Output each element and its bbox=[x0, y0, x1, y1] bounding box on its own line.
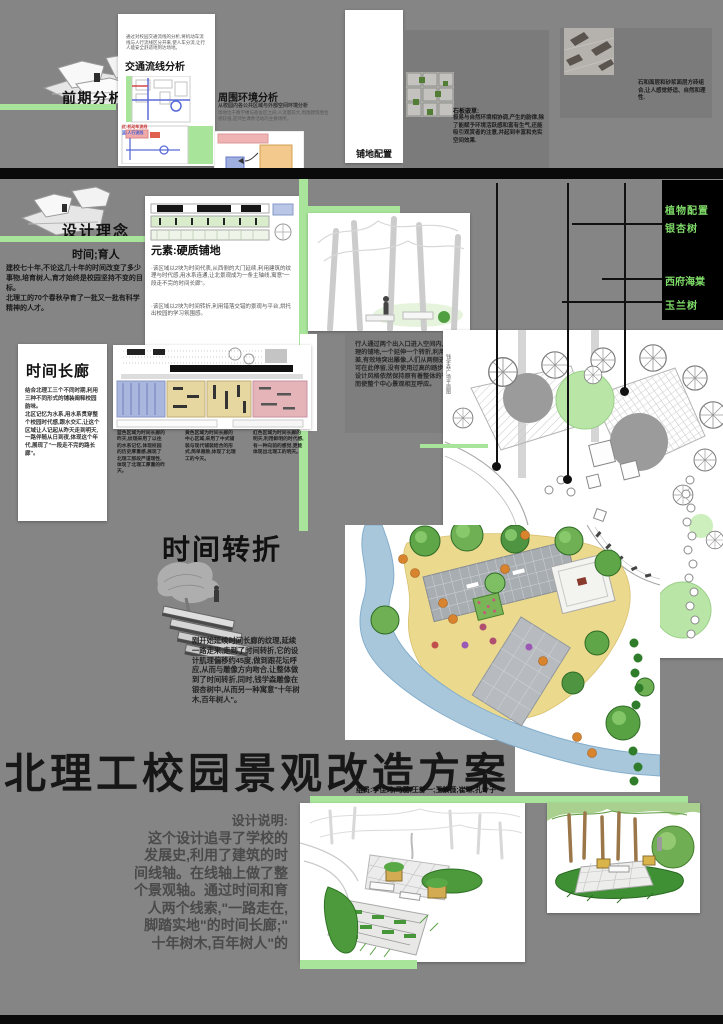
green-horizontal-bar bbox=[303, 206, 400, 213]
traffic-legend-blue: 蓝:人行流线 bbox=[122, 130, 143, 136]
shuoming-line: 这个设计追寻了学校的 bbox=[70, 830, 288, 848]
green-bar-concept bbox=[0, 236, 146, 242]
shuoming-line: 十年树木,百年树人"的 bbox=[70, 935, 288, 953]
plant-label-ginkgo: 银杏树 bbox=[665, 220, 698, 235]
perspective-sketch-right-drawing bbox=[547, 803, 700, 913]
shuoming-heading: 设计说明: bbox=[70, 812, 288, 830]
perspective-sketch-right bbox=[547, 803, 700, 913]
green-bar-qianqi bbox=[0, 104, 116, 110]
green-line-into-plan bbox=[420, 444, 488, 448]
zone-text-col3: 红色区域为时间长廊的明天,利用鲜明的时代感,有一种向前的感觉,更能体现出北理工的… bbox=[253, 431, 305, 457]
stone-grass-photo bbox=[406, 72, 454, 117]
yuansu-bullet2: ·该区域以2块为时间转折,利用错落交错的景观与平台,烘托出校园的学习氛围感。 bbox=[151, 304, 293, 319]
zone-text-col1: 蓝色区域为时间长廊的昨天,纹理采用了以往的水系记忆,体现校园的历史厚重感,展现了… bbox=[117, 431, 165, 476]
plants-panel: 植物配置 银杏树 西府海棠 玉兰树 bbox=[662, 180, 723, 320]
zones-plan-diagram bbox=[113, 345, 311, 429]
design-poster: 前期分析 通过对校园交通流线的分析,将机动车流线与人行流线区分开来,使人车分流,… bbox=[0, 0, 723, 1024]
zones-panel bbox=[113, 345, 311, 429]
plant-callout-line-3 bbox=[624, 183, 626, 391]
plant-callout-dot-1 bbox=[492, 462, 501, 471]
tree-sketch-drawing bbox=[308, 213, 470, 331]
traffic-title: 交通流线分析 bbox=[125, 58, 185, 73]
pudi-right-panel: 石和面层和砂浆面层方砖组合,让人感觉舒适、自然和理性. bbox=[560, 28, 712, 118]
zhuanzhe-body: 刚开始延续时间长廊的纹理,延续一路走来,走到了时间转折,它的设计肌理偏移约45度… bbox=[192, 636, 302, 705]
zhouwei-diagram bbox=[214, 131, 304, 173]
shuoming-line: 脚踏实地"的时间长廊;" bbox=[70, 917, 288, 935]
pudi-left-panel: 石板嵌草: 极易与自然环境相协调,产生的韵律,除了能赋予环境活跃感和富有生气,还… bbox=[403, 30, 549, 168]
plant-callout-dot-3 bbox=[620, 387, 629, 396]
plant-connector-line-2 bbox=[602, 278, 662, 280]
concept-body: 建校七十年,不论这几十年的时间改变了多少事物,培育树人,育才始终是校园坚持不变的… bbox=[6, 264, 144, 314]
tree-sketch-panel bbox=[308, 213, 470, 331]
traffic-analysis-panel: 通过对校园交通流线的分析,将机动车流线与人行流线区分开来,使人车分流,让行人能安… bbox=[118, 14, 215, 166]
black-divider-band bbox=[0, 168, 723, 179]
plant-connector-line-1 bbox=[572, 223, 662, 225]
zhouwei-subtitle: 从校园内各公共区域与外部空间环境分析 bbox=[218, 102, 308, 109]
siteplan-side-note: 钱学森广场平面图 bbox=[445, 354, 452, 394]
green-bar-under-title bbox=[310, 796, 688, 803]
pudi-left-title: 石板嵌草: bbox=[453, 106, 479, 115]
concept-subtitle: 时间;育人 bbox=[72, 246, 120, 262]
black-bottom-band bbox=[0, 1015, 723, 1024]
shuoming-block: 设计说明: 这个设计追寻了学校的 发展史,利用了建筑的时 间线轴。在线轴上做了整… bbox=[70, 812, 288, 952]
zhouwei-body: 场地位于教学楼与宿舍区之间,人流量较大,周围建筑围合感较强,是师生课余活动的主要… bbox=[218, 110, 332, 121]
yuansu-bullet1: ·该区域以2块为时间代表,从西侧的大门延续,利用建筑的纹理与时代感,用水系连通,… bbox=[151, 266, 293, 288]
pudi-right-body: 石和面层和砂浆面层方砖组合,让人感觉舒适、自然和理性. bbox=[638, 80, 708, 103]
paving-plan-diagram bbox=[149, 202, 297, 244]
traffic-intro: 通过对校园交通流线的分析,将机动车流线与人行流线区分开来,使人车分流,让行人能安… bbox=[126, 34, 208, 51]
plants-title: 植物配置 bbox=[665, 202, 709, 217]
green-bar-bottom-left bbox=[300, 960, 417, 969]
pudi-label: 铺地配置 bbox=[345, 147, 403, 160]
poster-title: 北理工校园景观改造方案 bbox=[4, 740, 604, 801]
traffic-flow-maps bbox=[120, 76, 213, 164]
shuoming-line: 发展史,利用了建筑的时 bbox=[70, 847, 288, 865]
pudi-left-body: 极易与自然环境相协调,产生的韵律,除了能赋予环境活跃感和富有生气,还能吸引观赏者… bbox=[453, 115, 545, 145]
changlang-body: 结合北理工三个不同时期,利用三种不同形式的铺装阐释校园韵味。 北区记忆为水系,用… bbox=[25, 388, 101, 459]
plant-label-magnolia: 玉兰树 bbox=[665, 297, 698, 312]
perspective-sketch-left-drawing bbox=[300, 803, 525, 962]
zone-text-col2: 黄色区域为时间长廊的中心区域,采用了中式铺装与现代铺装结合的形式,简单雅致,体现… bbox=[185, 431, 237, 463]
perspective-sketch-left bbox=[300, 803, 525, 962]
plant-callout-line-2 bbox=[567, 183, 569, 479]
plant-callout-line-1 bbox=[496, 183, 498, 466]
shuoming-line: 人两个线索,"一路走在, bbox=[70, 900, 288, 918]
pudi-strip: 铺地配置 bbox=[345, 10, 403, 163]
poster-credits: 组员:李佳玮;马蕊;王舒一;王紫薇;崔琳;孔令子 bbox=[356, 785, 496, 795]
shuoming-line: 个景观轴。通过时间和育 bbox=[70, 882, 288, 900]
brick-paving-photo bbox=[564, 28, 614, 75]
changlang-panel: 时间长廊 结合北理工三个不同时期,利用三种不同形式的铺装阐释校园韵味。 北区记忆… bbox=[18, 344, 107, 521]
plant-connector-line-3 bbox=[562, 301, 662, 303]
changlang-title: 时间长廊 bbox=[26, 360, 90, 381]
shuoming-line: 间线轴。在线轴上做了整 bbox=[70, 865, 288, 883]
plant-callout-dot-2 bbox=[563, 475, 572, 484]
yuansu-title: 元素:硬质铺地 bbox=[151, 242, 221, 258]
plant-label-crabapple: 西府海棠 bbox=[665, 273, 705, 288]
